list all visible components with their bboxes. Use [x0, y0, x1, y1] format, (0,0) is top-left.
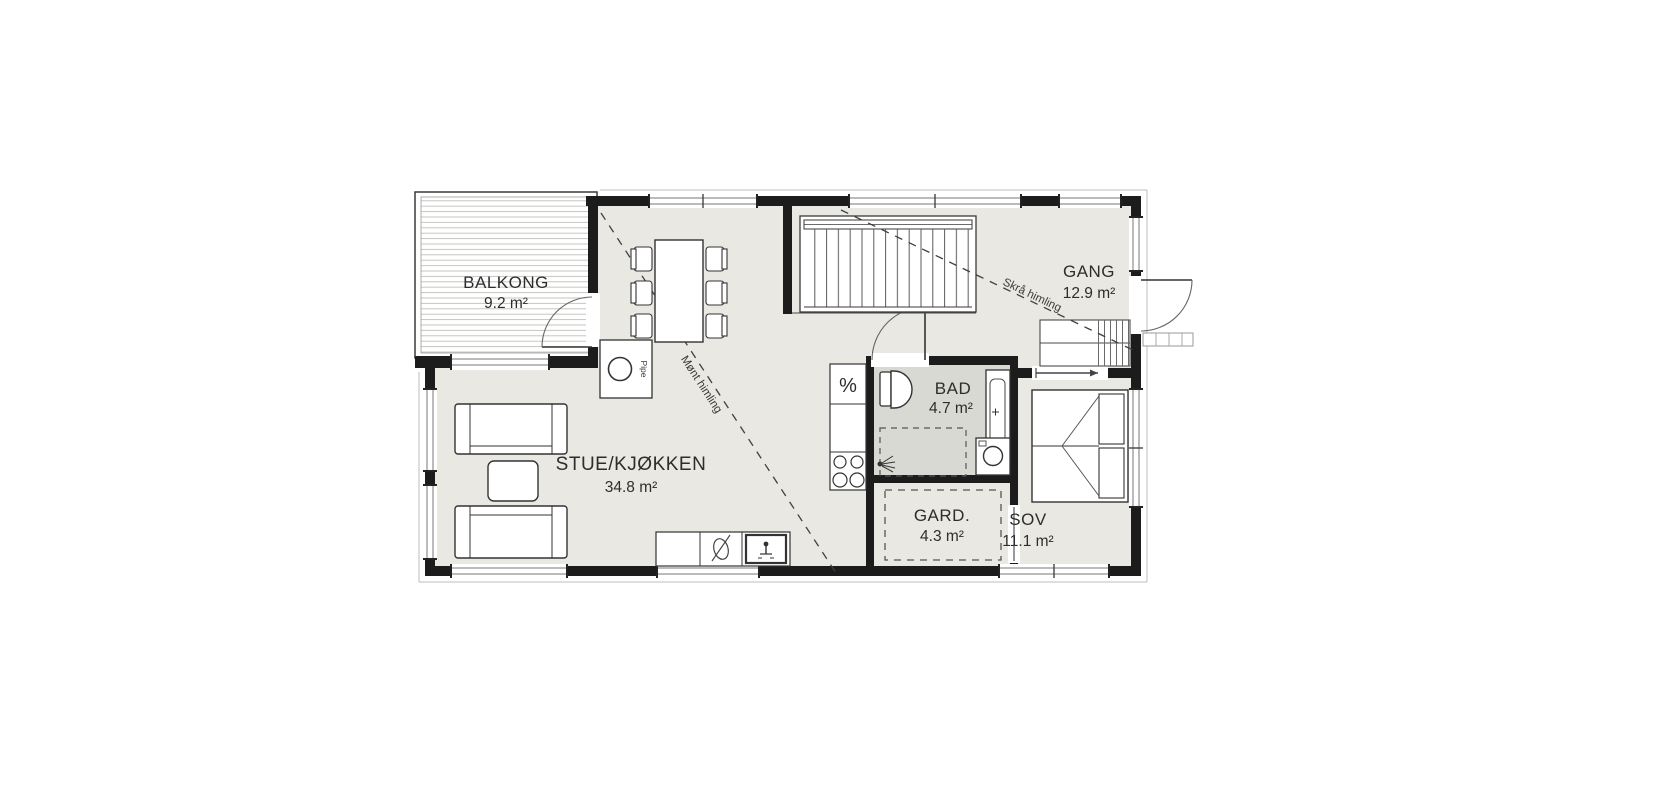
area-gard: 4.3 m² [920, 528, 964, 545]
dining-chairs-left [631, 247, 652, 338]
wall-bath-sov [1010, 356, 1018, 483]
kitchen-counter-bottom [656, 532, 790, 566]
sofa-top [455, 404, 567, 454]
dining-set [631, 240, 727, 342]
toilet-icon [880, 371, 912, 408]
label-sov: SOV [1009, 510, 1047, 529]
window-left-1 [423, 388, 437, 472]
sov-sliding-door [1032, 366, 1108, 380]
chimney-label: Pipe [639, 360, 649, 377]
dining-chairs-right [706, 247, 727, 338]
sofa-bottom [455, 506, 567, 558]
window-bottom-1 [450, 564, 568, 578]
window-top-3 [1058, 194, 1122, 208]
area-gang: 12.9 m² [1063, 285, 1116, 302]
label-gard: GARD. [914, 506, 970, 525]
stair-treads [804, 229, 972, 307]
area-bad: 4.7 m² [929, 400, 973, 417]
kitchen-sink-icon [746, 535, 786, 563]
label-bad: BAD [935, 379, 971, 398]
floor-plan-page: Mønt himling Skrå himling Pipe [0, 0, 1670, 800]
label-balkong: BALKONG [463, 273, 549, 292]
window-right-upper [1129, 216, 1143, 272]
washing-machine-icon [976, 438, 1010, 475]
bedroom-furniture [1032, 390, 1128, 502]
label-stue-kjokken: STUE/KJØKKEN [556, 454, 707, 475]
kitchen-counter-vertical: % [830, 364, 866, 490]
entry-step [1143, 333, 1193, 346]
wall-kitchen-gard [866, 356, 874, 566]
window-bottom-3 [998, 564, 1110, 578]
window-under-balcony [450, 354, 550, 370]
area-stue-kjokken: 34.8 m² [605, 479, 658, 496]
window-top-2 [848, 194, 1022, 208]
dining-table [655, 240, 703, 342]
floor-plan-canvas: Mønt himling Skrå himling Pipe [0, 0, 1670, 800]
double-bed [1032, 390, 1128, 502]
window-left-2 [423, 484, 437, 560]
wall-stairwell [783, 206, 792, 314]
label-gang: GANG [1063, 262, 1115, 281]
dishwasher-icon: % [839, 375, 857, 397]
area-sov: 11.1 m² [1002, 533, 1053, 550]
chimney: Pipe [600, 340, 652, 398]
area-balkong: 9.2 m² [484, 295, 528, 312]
window-right-sov [1129, 388, 1143, 508]
chimney-pipe-icon [609, 358, 632, 381]
window-top-1 [648, 194, 758, 208]
coffee-table [488, 461, 538, 501]
